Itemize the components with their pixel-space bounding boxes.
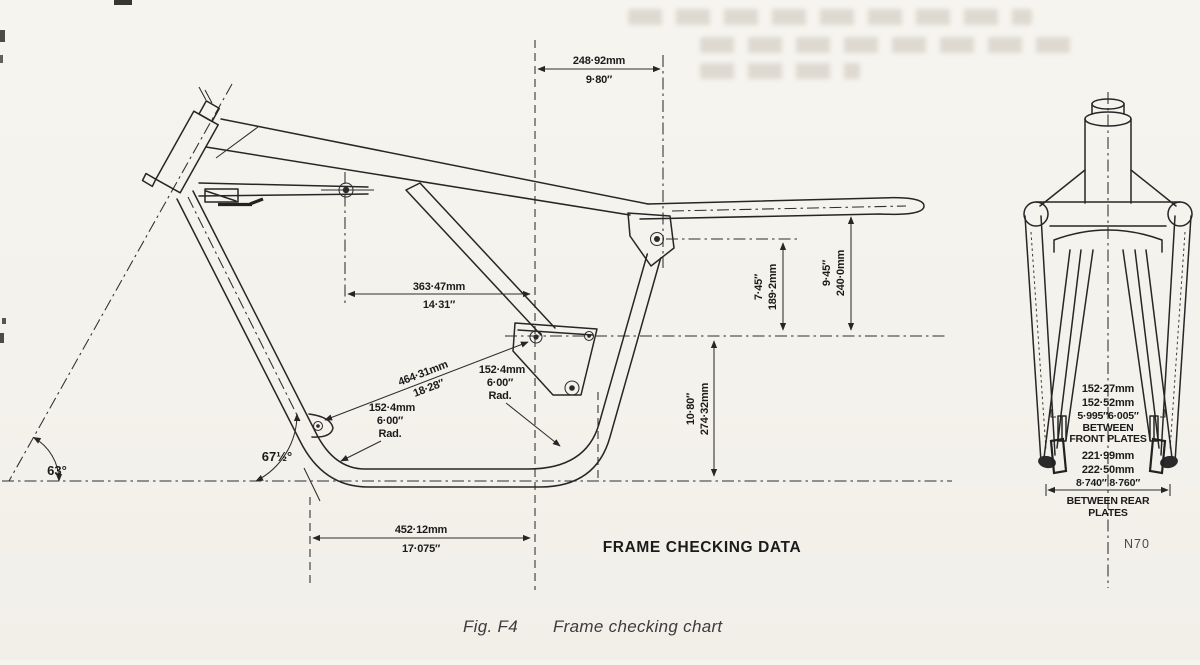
radius-rear-leader — [506, 403, 560, 446]
scan-speck — [0, 333, 4, 343]
dim-mid-in: 14·31″ — [423, 299, 456, 311]
scan-speck — [2, 318, 6, 324]
cross-member-boss-left — [1024, 202, 1048, 226]
diagonal-stay — [406, 183, 555, 335]
radius-rear-mm: 152·4mm — [479, 364, 526, 376]
plate-hole-dot — [533, 334, 538, 339]
dim-745-in: 7·45″ — [753, 273, 765, 300]
rear-plate-left — [1051, 439, 1066, 473]
dim-top-mm: 248·92mm — [573, 55, 626, 67]
dim-1080-mm: 274·32mm — [699, 382, 711, 435]
rear-rail — [640, 198, 924, 219]
engine-plate — [513, 323, 597, 395]
diagram-heading: FRAME CHECKING DATA — [603, 539, 802, 556]
rear-rail-centreline — [672, 206, 906, 211]
bleedthrough-smudge — [700, 37, 1072, 53]
rear-plates-label: PLATES — [1088, 507, 1128, 519]
steering-head-pin — [199, 87, 212, 103]
front-view-frame-drawing: 152·27mm 152·52mm 5·995″6·005″ BETWEEN F… — [1024, 92, 1192, 588]
dim-bottom-in: 17·075″ — [402, 543, 441, 555]
dim-1080-in: 10·80″ — [685, 392, 697, 425]
radius-front-in: 6·00″ — [377, 415, 404, 427]
rear-plates-in-range: 8·740″ 8·760″ — [1076, 477, 1140, 489]
frame-checking-diagram: 248·92mm 9·80″ 363·47mm 14·31″ 452·12mm … — [0, 0, 1200, 660]
steering-head-lug — [143, 174, 156, 187]
downtube-axis-extension — [304, 468, 320, 501]
dim-945-in: 9·45″ — [821, 259, 833, 286]
radius-rear-rad: Rad. — [488, 390, 511, 402]
bleedthrough-smudge — [628, 9, 1032, 25]
bleedthrough-smudge — [700, 63, 860, 79]
frame-loop-inner-edge — [193, 191, 647, 469]
front-plates-mm-max: 152·52mm — [1082, 397, 1135, 409]
scan-speck — [0, 55, 3, 63]
plate-hole-dot — [587, 334, 591, 338]
dim-top-in: 9·80″ — [586, 74, 613, 86]
scan-speck — [0, 30, 5, 42]
figure-caption-number: Fig. F4 — [463, 617, 518, 636]
pivot-hole-dot — [654, 236, 660, 242]
radius-rear-in: 6·00″ — [487, 377, 514, 389]
steering-axis-line — [9, 84, 232, 481]
fork-tube-left — [1025, 216, 1055, 462]
bracket-hole-dot — [316, 424, 320, 428]
cross-member-boss-right — [1168, 202, 1192, 226]
rear-plates-between: BETWEEN REAR — [1067, 495, 1150, 507]
dim-745-mm: 189·2mm — [767, 263, 779, 310]
radius-front-mm: 152·4mm — [369, 402, 416, 414]
scan-speck — [114, 0, 132, 5]
front-plates-label: FRONT PLATES — [1069, 433, 1147, 445]
rear-plates-mm-min: 221·99mm — [1082, 450, 1135, 462]
front-plates-mm-min: 152·27mm — [1082, 383, 1135, 395]
angle-63-label: 63° — [47, 463, 67, 478]
radius-front-leader — [341, 441, 381, 461]
head-gusset-line — [216, 127, 258, 158]
radius-front-rad: Rad. — [378, 428, 401, 440]
fork-tube-right — [1161, 216, 1191, 462]
top-tube — [206, 119, 648, 215]
frame-loop-outer-edge — [177, 199, 661, 487]
side-view-frame-drawing: 248·92mm 9·80″ 363·47mm 14·31″ 452·12mm … — [2, 40, 952, 590]
figure-caption-title: Frame checking chart — [553, 617, 723, 636]
plate-hole-dot — [569, 385, 575, 391]
dim-bottom-mm: 452·12mm — [395, 524, 448, 536]
rear-plates-mm-max: 222·50mm — [1082, 464, 1135, 476]
page-reference: N70 — [1124, 537, 1150, 551]
dim-mid-mm: 363·47mm — [413, 281, 466, 293]
angle-675-label: 67½° — [262, 449, 293, 464]
downtube-centreline — [188, 197, 300, 421]
ref-point-dot — [343, 187, 349, 193]
steering-head-tube — [156, 111, 218, 193]
rear-plate-right — [1150, 439, 1165, 473]
dim-945-mm: 240·0mm — [835, 249, 847, 296]
front-plates-in-range: 5·995″6·005″ — [1077, 410, 1139, 422]
